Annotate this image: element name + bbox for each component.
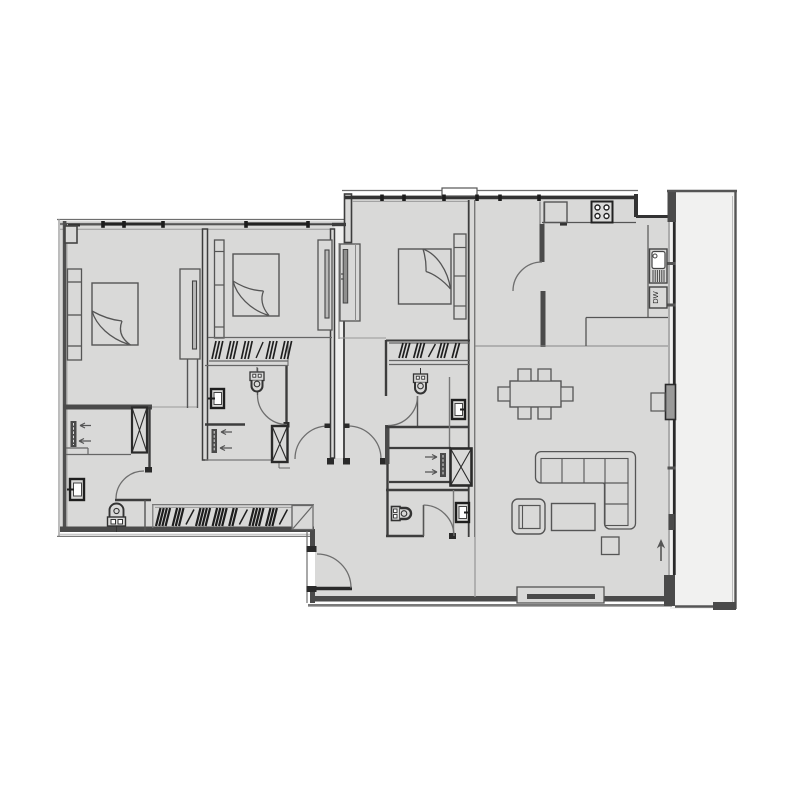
svg-text:DW: DW (651, 290, 660, 303)
